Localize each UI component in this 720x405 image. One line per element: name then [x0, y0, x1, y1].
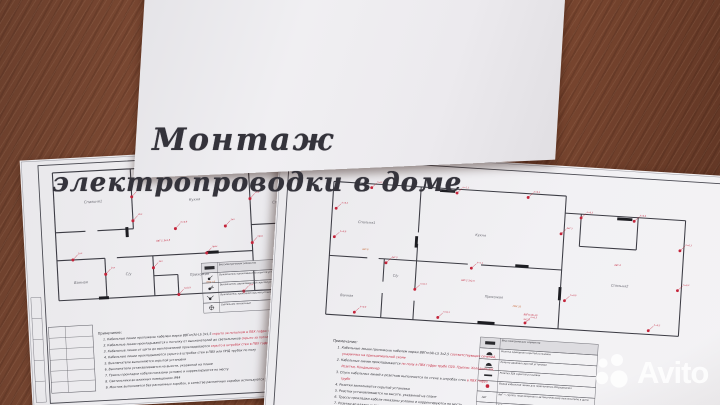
- outlet-annotation: h=1,1: [463, 187, 469, 189]
- outlet-annotation: h=0,3: [534, 192, 541, 194]
- note-word: Розетки,: [341, 364, 357, 369]
- wall-segment: [57, 258, 105, 261]
- note-word: Светильники: [109, 378, 132, 383]
- note-word: соответствующих: [450, 352, 481, 358]
- note-word: кабельных: [351, 371, 370, 376]
- note-word: Розетки: [339, 383, 354, 388]
- socket-symbol: [486, 363, 492, 366]
- outlet-annotation: h=0,9: [184, 286, 191, 289]
- room-label: Прихожая: [485, 295, 503, 300]
- note-word: Кабельные: [107, 336, 126, 341]
- note-word: Трассы: [109, 373, 122, 378]
- note-word: прокладываются: [372, 360, 402, 366]
- wall-segment: [105, 258, 107, 298]
- notes-title: Примечание:: [333, 339, 358, 345]
- plan-annotation: ПВХ 20: [513, 305, 522, 309]
- note-word: прокладываются: [137, 340, 166, 346]
- note-word: выполняются: [354, 384, 378, 389]
- outlet-annotation: h=0,3: [587, 212, 594, 214]
- legend-divider: [496, 392, 497, 403]
- wall-segment: [329, 255, 367, 257]
- legend-text: Розетка двойная скрытой установки: [500, 361, 547, 367]
- note-word: указанных: [341, 352, 361, 357]
- wall-segment: [381, 293, 383, 318]
- note-word: линии: [126, 354, 138, 359]
- note-word: потолком: [229, 330, 246, 335]
- outlet-annotation: 2кл: [138, 213, 143, 216]
- note-word: прокладки: [121, 372, 140, 377]
- legend-divider: [499, 349, 500, 360]
- margin-strip-line: [34, 360, 44, 361]
- note-word: ВВГнг(А)-LS: [420, 350, 441, 355]
- note-word: трубе: [341, 376, 352, 381]
- legend-symbol: [204, 266, 214, 270]
- note-word: проложены: [372, 347, 393, 352]
- note-word: условно: [399, 399, 415, 404]
- note-word: принципиальной: [366, 353, 396, 359]
- note-word: линии: [126, 348, 138, 353]
- group-symbol: АвГ: [481, 395, 488, 399]
- note-word: прокладываются: [182, 344, 211, 350]
- outlet-annotation: h=0,3: [443, 312, 450, 314]
- outlet-leader: [334, 232, 339, 237]
- note-word: линий: [369, 372, 382, 377]
- note-word: гофро: [477, 379, 489, 384]
- note-word: указанной: [179, 363, 198, 368]
- wall-segment: [55, 231, 85, 233]
- wall-segment: [154, 275, 178, 276]
- wall-segment: [565, 196, 566, 213]
- legend-divider: [498, 371, 499, 382]
- plan-annotation: АвГ-4: [613, 264, 621, 267]
- handwritten-title-line2: электропроводки в доме: [52, 168, 462, 198]
- note-word: качестве: [191, 380, 207, 385]
- note-word: стен: [458, 378, 467, 383]
- socket-group-mark: [558, 287, 562, 300]
- legend-text: АвГ — группа, подключенная к автоматичес…: [497, 393, 589, 402]
- plan-annotation: ВВГнг(А)-LS: [524, 313, 539, 317]
- note-line: Розетки, Кондиционер: [341, 364, 380, 370]
- legend-text: Светильник потолочный: [221, 302, 251, 307]
- room-label: С/у: [393, 274, 400, 278]
- note-word: показаны: [152, 370, 169, 375]
- note-word: корректируются: [418, 400, 447, 405]
- note-word: устанавливаются: [131, 364, 162, 370]
- wall-segment: [326, 181, 334, 314]
- legend-row: [476, 402, 594, 405]
- legend-divider: [219, 302, 220, 312]
- outlet-annotation: h=0,3: [654, 325, 661, 327]
- socket32-symbol: [484, 375, 492, 376]
- notes-title: Примечание:: [98, 331, 122, 336]
- note-word: влажных: [136, 377, 152, 382]
- cable-out-symbol: [486, 384, 490, 388]
- legend-text: Выключатель проходной скрытой установки: [220, 290, 275, 296]
- note-word: трубе: [437, 364, 448, 369]
- outlet-leader: [252, 237, 257, 242]
- outlet-annotation: h=0,3: [685, 245, 692, 247]
- wall-segment: [178, 275, 179, 295]
- note-line: 3. Спуск кабельных линий к розеткам выпо…: [336, 370, 489, 384]
- note-word: высоте,: [166, 364, 180, 369]
- note-word: кабеля: [371, 397, 384, 402]
- note-word: помещениях: [152, 376, 174, 381]
- switch-symbol: [207, 296, 210, 299]
- note-word: Кабельные: [342, 345, 362, 350]
- note-word: скрытой: [155, 358, 170, 363]
- note-word: штробах: [443, 377, 459, 382]
- wall-segment: [636, 218, 638, 250]
- note-word: гофро: [426, 363, 438, 368]
- note-word: стене: [429, 376, 440, 381]
- note-word: плане: [426, 394, 437, 399]
- legend-divider: [218, 282, 219, 292]
- legend-symbol: [485, 341, 495, 345]
- title-block-line: [49, 336, 93, 338]
- plan-annotation: АвГ-1 3х1,5: [155, 239, 171, 243]
- floor-plan: Спальня1КухняСпальня2С/уВаннаяПрихожаяh=…: [326, 179, 696, 337]
- note-word: скрыто: [211, 343, 224, 348]
- outlet-annotation: h=0,9: [640, 215, 647, 217]
- note-word: коробок,: [173, 381, 188, 386]
- note-word: установки: [168, 357, 187, 362]
- outlet-annotation: h=0,9: [340, 231, 347, 233]
- outlet-annotation: 1кл: [230, 218, 235, 221]
- note-word: сечений,: [481, 354, 497, 359]
- outlet-annotation: h=1,1: [477, 262, 483, 264]
- socket-group-mark: [99, 296, 109, 300]
- wall-segment: [117, 251, 253, 258]
- note-word: Кабельные: [108, 354, 127, 359]
- wall-segment: [579, 246, 636, 250]
- note-word: проложены: [137, 335, 157, 340]
- note-word: розеткам: [383, 373, 401, 378]
- plan-annotation: АвГ-6: [361, 248, 369, 251]
- outlet-leader: [105, 269, 110, 274]
- note-word: выполняется: [401, 374, 424, 379]
- note-word: установки: [391, 386, 411, 391]
- avito-watermark-text: Avito: [637, 357, 708, 388]
- note-word: кабеля: [140, 371, 153, 376]
- outlet-leader: [153, 263, 158, 268]
- wall-segment: [413, 301, 414, 320]
- photo-scene: Спальня1КухняСпальня2ВаннаяС/уПрихожая1к…: [0, 0, 720, 405]
- outlet-annotation: h=0,3: [420, 283, 427, 285]
- note-word: скрыто: [212, 331, 225, 336]
- outlet-annotation: h=0,9: [360, 306, 367, 308]
- note-word: коробок: [227, 378, 241, 383]
- note-word: светильников: [218, 336, 242, 341]
- note-word: прокладываются: [138, 352, 167, 358]
- plan-annotation: ПВХ 16: [206, 281, 216, 284]
- note-word: ПВХ: [252, 341, 260, 345]
- outlet-leader: [438, 313, 443, 318]
- wall-segment: [326, 314, 679, 336]
- outlet-leader: [564, 296, 569, 301]
- note-word: стен: [241, 342, 250, 346]
- note-word: 3х1,5: [203, 332, 213, 337]
- room-label: Кухня: [475, 233, 486, 238]
- note-word: распаячных: [205, 379, 227, 384]
- outlet-annotation: h=0,9: [181, 220, 188, 223]
- legend-divider: [218, 272, 219, 282]
- note-word: распаячных: [151, 382, 173, 387]
- outlet-leader: [471, 263, 476, 268]
- note-word: выполняется: [124, 383, 146, 388]
- socket-group-mark: [125, 227, 129, 237]
- wall-segment: [415, 261, 417, 289]
- outlet-annotation: h=0,9: [570, 295, 577, 297]
- note-word: полу: [406, 362, 415, 367]
- title-block-line: [50, 347, 94, 349]
- note-word: Выключатели: [109, 366, 133, 371]
- outlet-annotation: прох: [212, 245, 218, 248]
- outlet-leader: [336, 204, 341, 209]
- avito-watermark: Avito: [594, 352, 708, 392]
- handwritten-title-line1: Монтаж: [152, 122, 335, 158]
- note-word: штробах: [226, 342, 241, 347]
- note-word: скрытой: [377, 385, 392, 390]
- note-word: ВВГнг(А)-LS: [183, 332, 203, 337]
- note-word: выключателей: [157, 345, 182, 350]
- note-word: линии: [360, 347, 373, 352]
- socket-group-mark: [617, 217, 632, 221]
- note-word: марки: [172, 333, 183, 338]
- room-label: Спальня1: [84, 199, 102, 204]
- avito-dots-icon: [594, 352, 632, 392]
- legend-divider: [497, 381, 498, 392]
- wall-segment: [561, 213, 566, 287]
- note-word: кабелем: [393, 349, 408, 354]
- note-word: выполняются: [132, 359, 155, 364]
- wall-segment: [678, 221, 685, 337]
- note-word: Холодильник,: [470, 366, 496, 372]
- note-word: Монтаж: [109, 385, 123, 390]
- note-word: Выключатели: [108, 360, 132, 365]
- note-word: Кабельные: [108, 348, 127, 353]
- note-word: Группы:: [457, 365, 472, 370]
- outlet-annotation: h=0,3: [530, 317, 537, 319]
- note-word: линии: [359, 359, 372, 364]
- note-word: Трассы: [338, 395, 351, 400]
- room-label: Ванная: [340, 293, 353, 298]
- note-word: устанавливаются: [352, 390, 384, 396]
- note-word: Кабельные: [341, 358, 361, 363]
- room-label: Ванная: [74, 280, 89, 285]
- note-word: 3х2,5: [440, 352, 450, 357]
- note-word: полу: [248, 347, 257, 351]
- note-word: Розетки: [339, 389, 354, 394]
- room-label: Спальня1: [358, 220, 376, 225]
- legend-text: Розетка 32А скрытой установки: [500, 372, 541, 378]
- note-word: Розетки: [338, 401, 353, 405]
- note-word: IP44: [174, 375, 182, 379]
- note-word: показаны: [383, 398, 400, 403]
- outlet-annotation: АвГ-5: [390, 256, 398, 259]
- note-word: линии: [125, 342, 137, 347]
- outlet-leader: [244, 286, 249, 291]
- note-word: скрыто: [242, 336, 255, 341]
- outlet-leader: [133, 216, 138, 221]
- note-word: потолку: [169, 339, 183, 344]
- note-word: корректируются: [186, 368, 214, 373]
- margin-strip-line: [35, 381, 45, 382]
- note-word: марки: [408, 350, 420, 355]
- switch-symbol: [210, 296, 214, 299]
- note-word: плане: [203, 362, 214, 367]
- room-label: Спальня2: [611, 283, 629, 288]
- outlet-leader: [179, 289, 184, 294]
- outlet-leader: [648, 326, 653, 331]
- outlet-annotation: h=0,3: [683, 285, 690, 287]
- note-word: высоте,: [389, 392, 403, 397]
- outlet-annotation: 1кл: [78, 252, 83, 255]
- note-word: П20.: [448, 365, 457, 370]
- wall-segment: [417, 261, 468, 264]
- note-word: прокладки: [351, 396, 370, 401]
- outlet-annotation: 1кл: [111, 266, 116, 269]
- note-word: кабелем: [157, 334, 172, 339]
- margin-strip-line: [32, 318, 42, 319]
- note-word: штробах: [182, 351, 197, 356]
- plan-annotation: АвГ-2 3х2,5: [460, 279, 475, 283]
- note-word: ПВХ: [209, 350, 217, 354]
- note-word: ПНД: [223, 349, 231, 353]
- plan-annotation: 3х2,5: [523, 318, 530, 321]
- title-block-line: [50, 358, 94, 360]
- note-line: трубе: [341, 376, 352, 381]
- outlet-annotation: 1кл: [159, 260, 164, 263]
- note-word: схеме: [396, 355, 407, 360]
- note-word: месту: [219, 367, 230, 372]
- outlet-annotation: АвГ-3: [566, 227, 574, 230]
- note-word: ПВХ: [249, 329, 257, 333]
- switch-symbol: [209, 276, 213, 279]
- legend-divider: [498, 360, 499, 371]
- note-word: Кабельные: [107, 342, 126, 347]
- wall-segment: [383, 259, 384, 282]
- note-word: указанной: [402, 393, 422, 398]
- outlet-leader: [73, 255, 78, 260]
- room-label: С/у: [126, 272, 133, 276]
- note-word: скрыто: [167, 352, 180, 357]
- note-word: условно: [168, 369, 183, 374]
- legend-divider: [219, 292, 220, 302]
- note-word: Кондиционер: [357, 365, 381, 370]
- note-word: трубах: [231, 348, 243, 353]
- title-block-line: [51, 380, 95, 382]
- wall-segment: [558, 300, 560, 328]
- note-word: Спуск: [340, 370, 351, 375]
- note-word: используются: [241, 377, 265, 382]
- outlet-leader: [354, 307, 359, 312]
- note-word: гофро: [256, 329, 267, 334]
- note-word: щита: [142, 347, 152, 351]
- title-block-line: [51, 369, 95, 371]
- note-word: линии: [125, 336, 137, 341]
- margin-strip-line: [33, 339, 43, 340]
- outlet-annotation: прох: [257, 234, 263, 237]
- note-word: стен: [197, 350, 206, 354]
- note-word: выключателей: [188, 338, 213, 343]
- outlet-leader: [175, 223, 180, 228]
- outlet-leader: [225, 221, 230, 226]
- outlet-annotation: h=0,3: [342, 202, 349, 204]
